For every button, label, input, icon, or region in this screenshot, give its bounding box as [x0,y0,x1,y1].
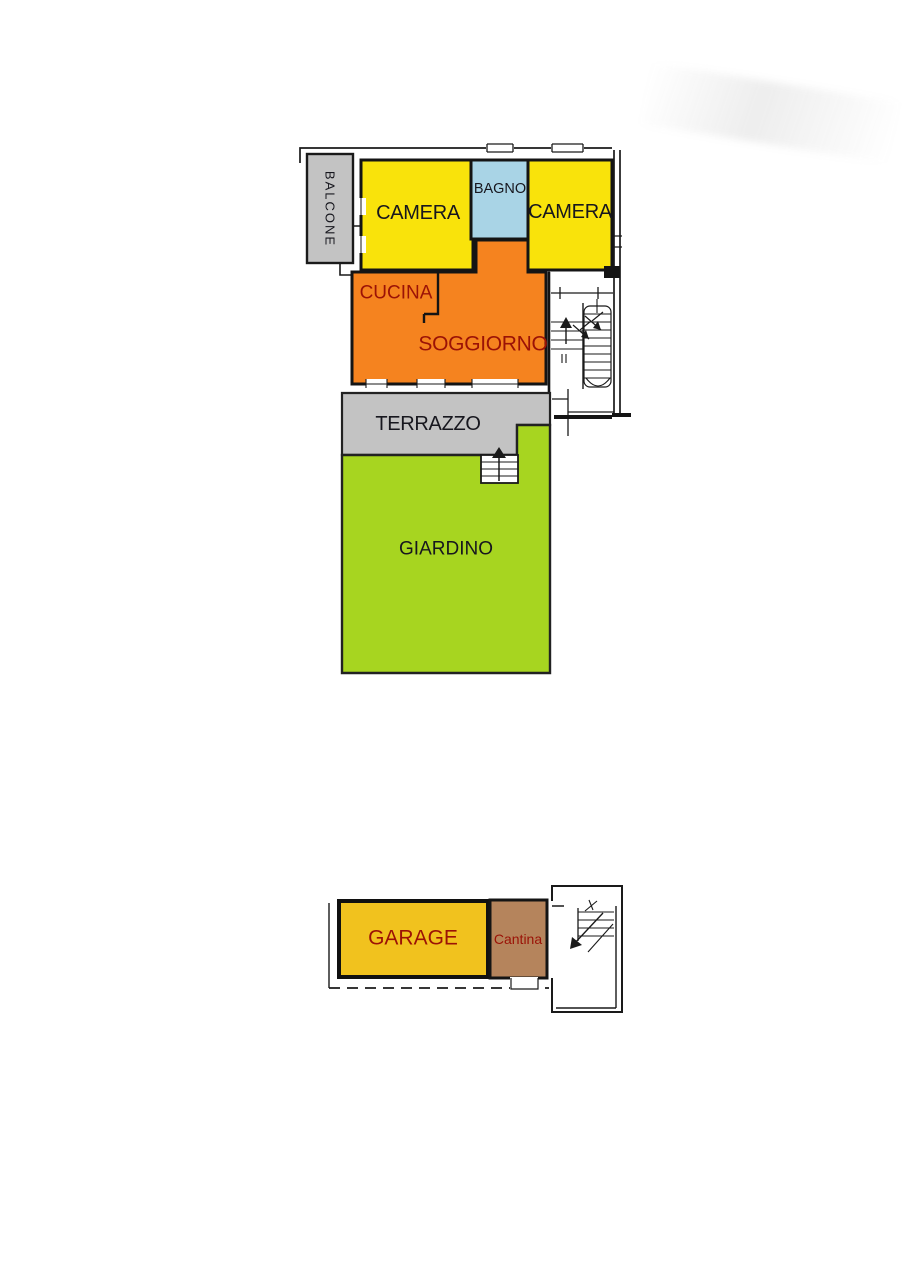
room-label-soggiorno: SOGGIORNO [418,334,547,355]
stairwell-wall-lines [549,270,614,436]
room-label-camera-right: CAMERA [528,202,612,222]
room-label-bagno: BAGNO [474,182,526,197]
stairwell-outline [552,886,622,1012]
stairwell-bottom-wall [554,415,631,417]
room-label-giardino: GIARDINO [399,540,493,559]
floor-plan-image: BALCONE CAMERA BAGNO CAMERA CUCINA SOGGI… [0,0,905,1280]
wall-junction-block [604,266,620,278]
direction-arrow-down-head [570,937,582,949]
stairwell-inner-walls [552,906,616,1008]
room-label-camera-left: CAMERA [376,203,460,223]
room-label-garage: GARAGE [368,928,458,949]
staircase-basement [570,900,614,952]
room-label-terrazzo: TERRAZZO [375,414,480,434]
room-bagno-area [471,160,530,239]
room-label-balcone: BALCONE [324,171,337,247]
stair-treads [551,314,611,378]
stair-turn-curve [586,378,610,386]
floor-plan-drawing [0,0,905,1280]
door-gap [510,977,538,990]
room-label-cucina: CUCINA [360,284,433,303]
stair-treads [578,912,614,936]
stair-handrail-tick [585,900,597,911]
room-label-cantina: Cantina [494,932,542,946]
staircase-main [551,299,611,389]
